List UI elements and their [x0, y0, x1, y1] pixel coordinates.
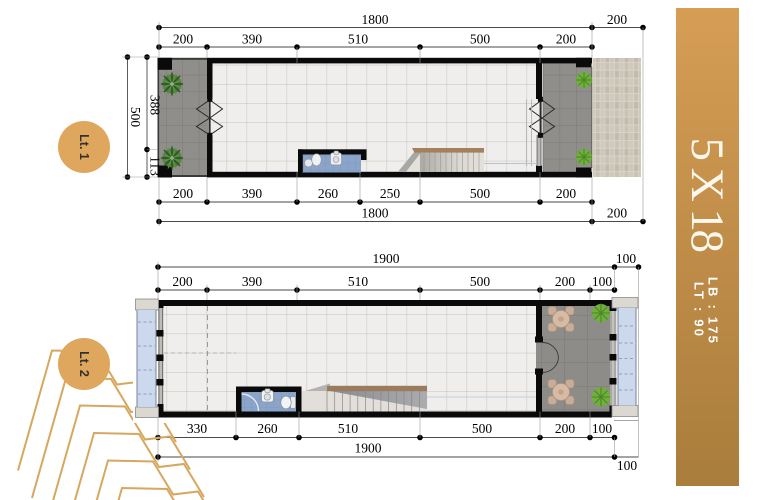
svg-text:200: 200 [556, 186, 577, 201]
svg-text:1900: 1900 [373, 251, 400, 266]
svg-text:200: 200 [607, 206, 628, 221]
svg-text:200: 200 [555, 421, 576, 436]
svg-text:510: 510 [348, 32, 369, 47]
svg-text:500: 500 [128, 107, 143, 128]
svg-text:500: 500 [470, 274, 491, 289]
svg-text:100: 100 [592, 274, 613, 289]
svg-text:500: 500 [470, 32, 491, 47]
svg-text:390: 390 [242, 186, 263, 201]
svg-text:200: 200 [172, 274, 193, 289]
svg-text:1900: 1900 [355, 441, 382, 456]
svg-text:510: 510 [348, 274, 369, 289]
svg-text:390: 390 [242, 274, 263, 289]
svg-text:100: 100 [592, 421, 613, 436]
svg-text:113: 113 [148, 156, 163, 176]
svg-text:250: 250 [380, 186, 401, 201]
svg-text:200: 200 [173, 186, 194, 201]
svg-text:510: 510 [338, 421, 359, 436]
svg-text:500: 500 [472, 421, 493, 436]
svg-text:5 X 18: 5 X 18 [681, 138, 733, 252]
svg-text:LT : 90: LT : 90 [692, 282, 707, 338]
svg-text:260: 260 [318, 186, 339, 201]
svg-text:1800: 1800 [362, 12, 389, 27]
svg-text:LB : 175: LB : 175 [706, 277, 721, 345]
svg-text:330: 330 [187, 421, 208, 436]
svg-text:390: 390 [242, 32, 263, 47]
svg-text:100: 100 [617, 458, 638, 473]
svg-text:Lt. 1: Lt. 1 [77, 134, 91, 160]
svg-text:100: 100 [616, 251, 637, 266]
svg-text:388: 388 [148, 95, 163, 116]
svg-text:Lt. 2: Lt. 2 [77, 351, 91, 377]
svg-text:200: 200 [607, 12, 628, 27]
svg-text:200: 200 [173, 32, 194, 47]
svg-text:200: 200 [556, 32, 577, 47]
svg-text:1800: 1800 [362, 206, 389, 221]
svg-text:260: 260 [257, 421, 278, 436]
svg-text:500: 500 [470, 186, 491, 201]
svg-text:200: 200 [555, 274, 576, 289]
